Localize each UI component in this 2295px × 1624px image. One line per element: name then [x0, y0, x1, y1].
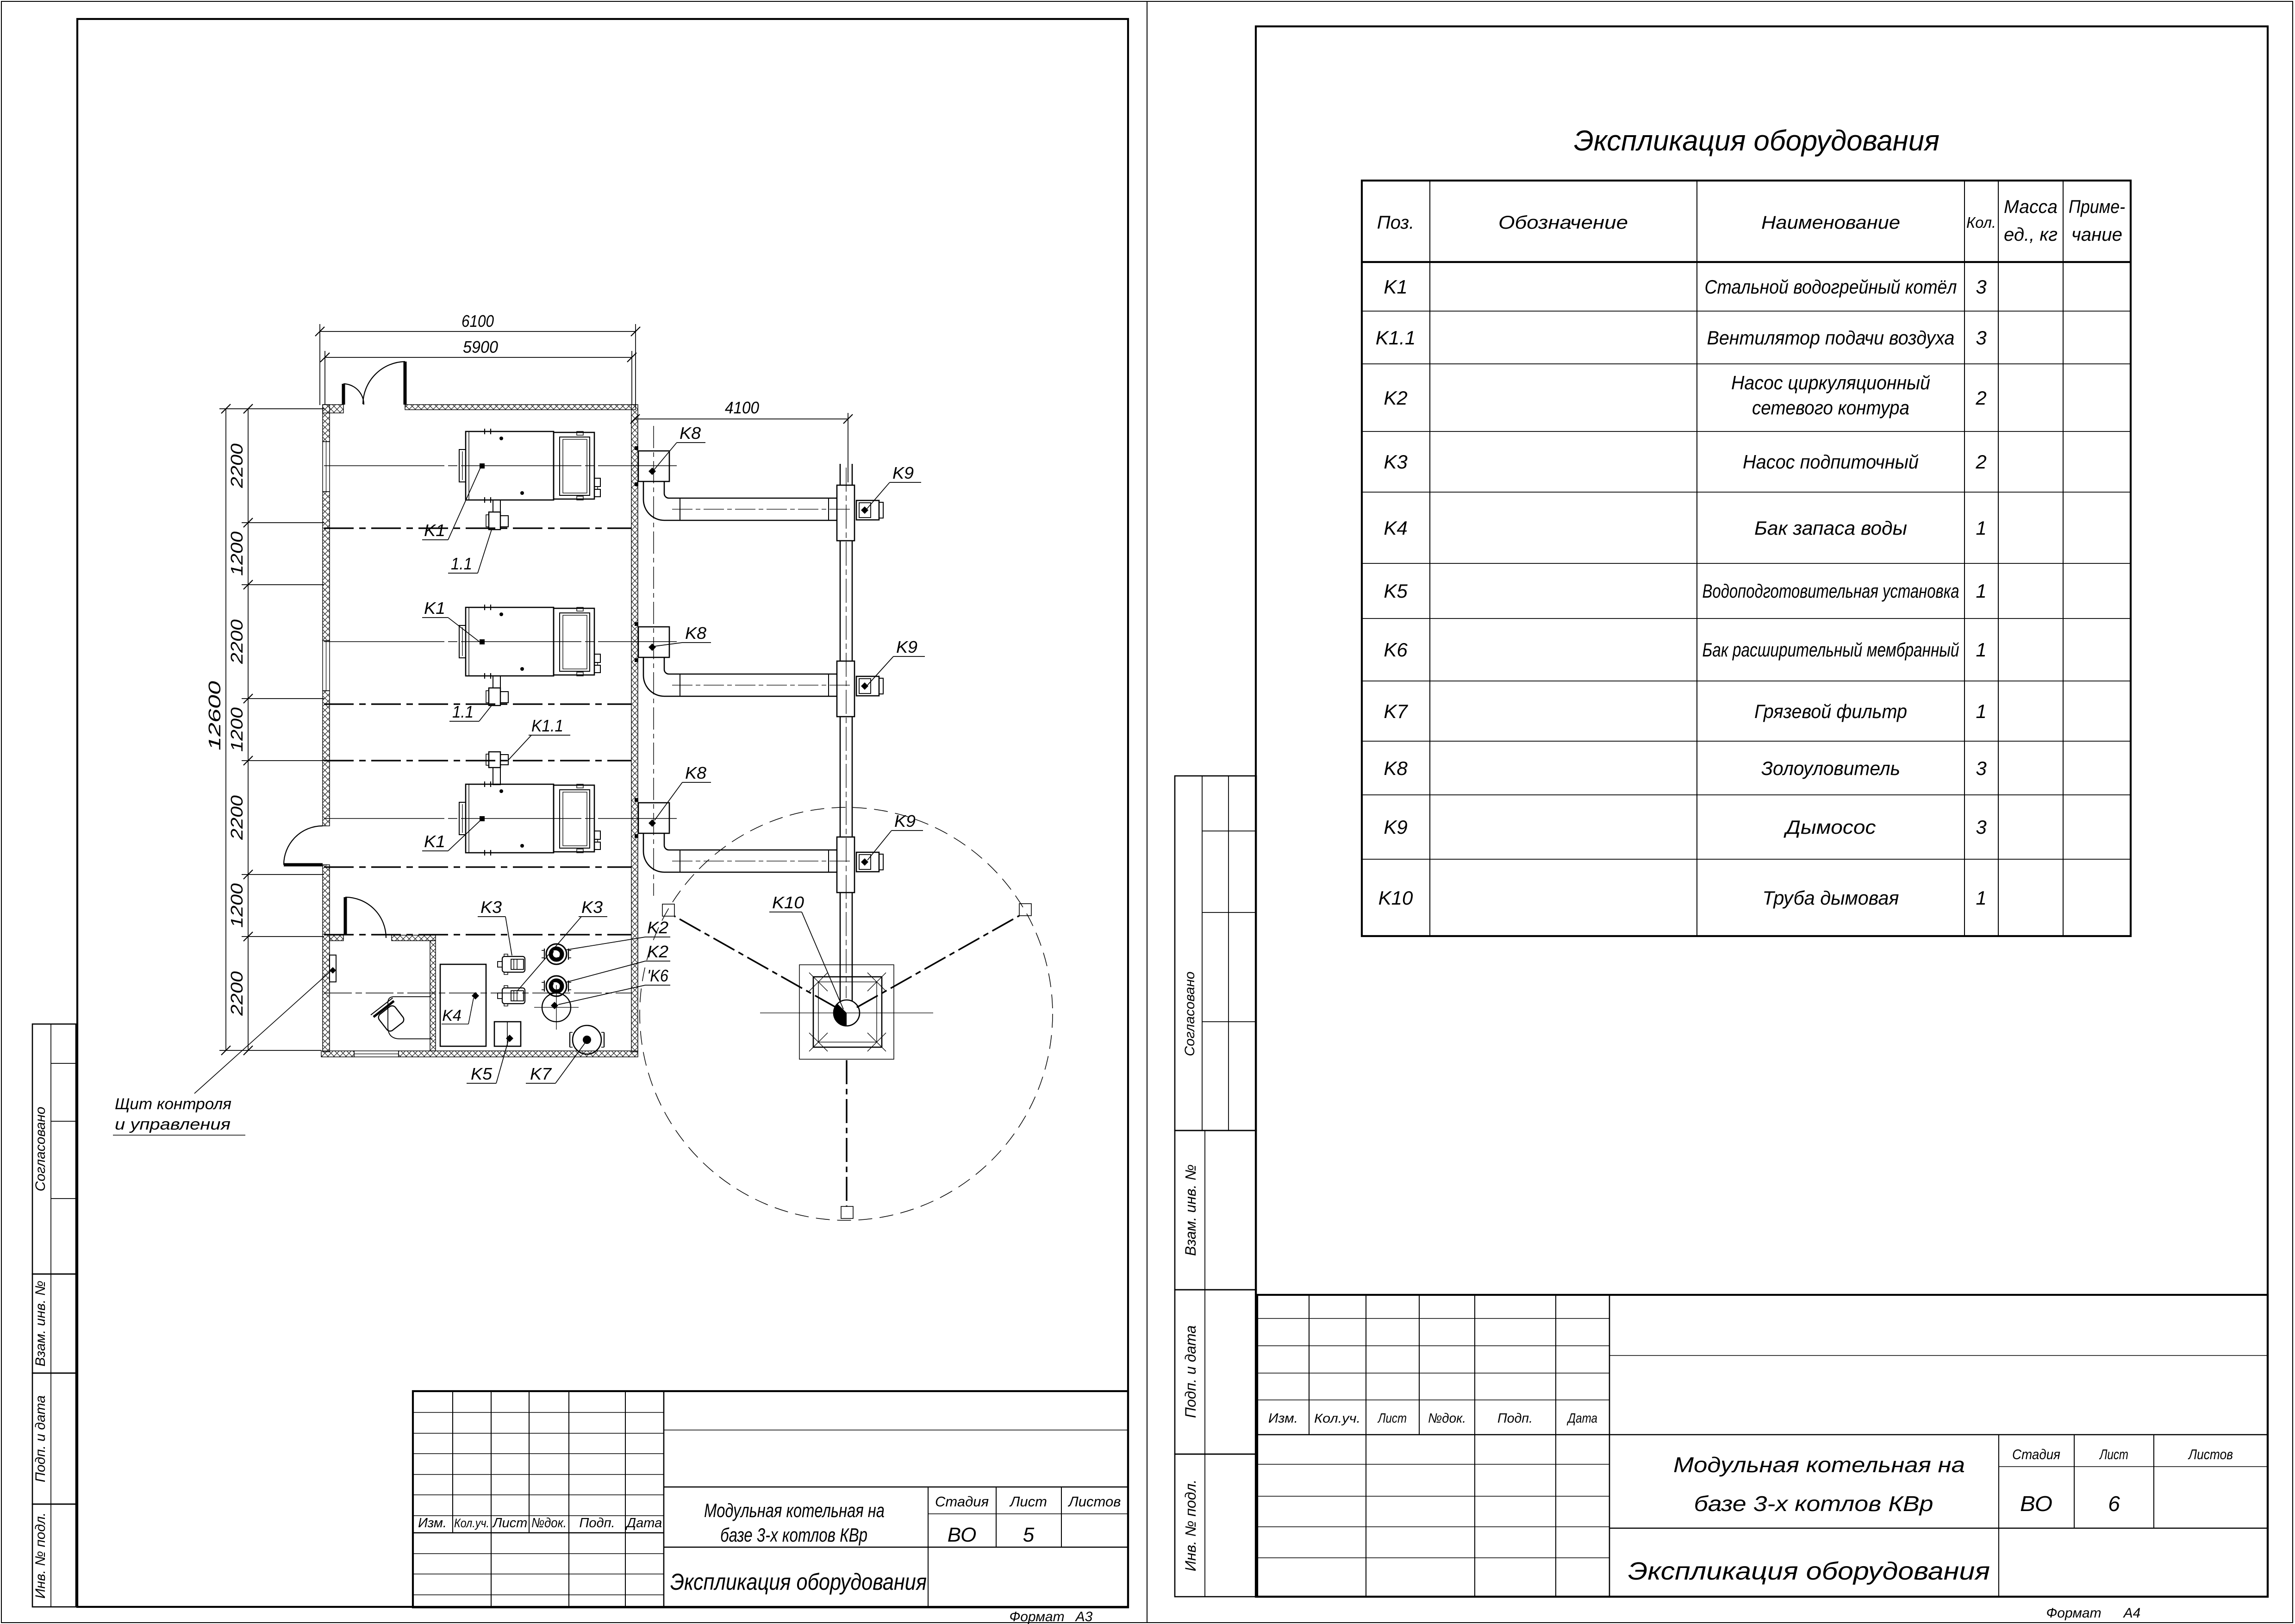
svg-text:2200: 2200: [227, 443, 246, 488]
svg-text:Лист: Лист: [1377, 1411, 1407, 1426]
svg-text:K10: K10: [772, 893, 804, 912]
svg-text:А3: А3: [1075, 1609, 1093, 1624]
svg-text:чание: чание: [2071, 225, 2122, 245]
svg-text:K1: K1: [424, 832, 445, 851]
svg-text:Подп.: Подп.: [1497, 1411, 1533, 1426]
svg-text:Лист: Лист: [492, 1516, 528, 1530]
svg-text:K4: K4: [442, 1007, 461, 1024]
svg-text:Подп. и дата: Подп. и дата: [1182, 1325, 1199, 1418]
svg-text:Инв. № подл.: Инв. № подл.: [1182, 1480, 1199, 1572]
svg-text:Грязевой фильтр: Грязевой фильтр: [1754, 700, 1907, 722]
svg-text:Изм.: Изм.: [418, 1516, 447, 1530]
svg-text:Насос циркуляционный: Насос циркуляционный: [1731, 372, 1930, 394]
svg-text:Формат: Формат: [1009, 1609, 1064, 1624]
svg-text:Изм.: Изм.: [1268, 1411, 1298, 1426]
svg-text:сетевого контура: сетевого контура: [1752, 397, 1909, 418]
svg-text:2200: 2200: [227, 619, 246, 664]
svg-text:Дата: Дата: [625, 1516, 662, 1530]
svg-text:Подп.: Подп.: [579, 1516, 615, 1530]
svg-text:2200: 2200: [227, 795, 246, 840]
svg-text:Листов: Листов: [2188, 1446, 2233, 1462]
svg-text:Модульная котельная на: Модульная котельная на: [1673, 1453, 1965, 1477]
svg-text:K3: K3: [480, 898, 502, 917]
svg-text:K4: K4: [1384, 517, 1407, 539]
svg-text:5: 5: [1023, 1524, 1035, 1546]
svg-text:ВО: ВО: [948, 1524, 977, 1546]
svg-text:Щит контроля: Щит контроля: [115, 1095, 231, 1113]
svg-text:1: 1: [1976, 517, 1986, 539]
svg-text:1.1: 1.1: [452, 702, 474, 721]
svg-text:Бак запаса воды: Бак запаса воды: [1754, 517, 1907, 539]
svg-text:Стадия: Стадия: [935, 1493, 989, 1510]
svg-text:1: 1: [1976, 580, 1986, 602]
svg-text:Приме-: Приме-: [2069, 197, 2125, 217]
svg-text:K8: K8: [685, 624, 706, 643]
svg-text:Золоуловитель: Золоуловитель: [1761, 757, 1900, 779]
svg-text:6: 6: [2108, 1492, 2120, 1516]
svg-text:3: 3: [1976, 757, 1986, 779]
svg-text:K1: K1: [1384, 276, 1407, 298]
svg-text:ед., кг: ед., кг: [2004, 225, 2058, 245]
svg-text:Кол.уч.: Кол.уч.: [454, 1516, 489, 1530]
svg-text:Формат: Формат: [2046, 1605, 2101, 1621]
svg-text:K1.1: K1.1: [1376, 327, 1416, 349]
svg-text:K1: K1: [424, 521, 445, 540]
svg-text:2200: 2200: [227, 971, 246, 1016]
svg-text:Стадия: Стадия: [2012, 1446, 2060, 1462]
svg-text:Насос подпиточный: Насос подпиточный: [1743, 451, 1919, 473]
svg-text:K8: K8: [680, 424, 701, 443]
svg-text:№док.: №док.: [531, 1516, 567, 1530]
svg-text:1: 1: [1976, 700, 1986, 722]
svg-text:Согласовано: Согласовано: [33, 1107, 48, 1192]
svg-text:K5: K5: [471, 1064, 493, 1083]
svg-text:Экспликация оборудования: Экспликация оборудования: [1628, 1557, 1990, 1585]
svg-text:Модульная котельная на: Модульная котельная на: [704, 1499, 885, 1521]
svg-text:А4: А4: [2123, 1605, 2141, 1621]
svg-text:K9: K9: [894, 812, 916, 831]
svg-text:базе 3-х котлов КВр: базе 3-х котлов КВр: [720, 1524, 867, 1546]
svg-text:Дата: Дата: [1566, 1411, 1597, 1426]
svg-text:Бак расширительный мембранный: Бак расширительный мембранный: [1703, 639, 1959, 661]
svg-text:Наименование: Наименование: [1761, 212, 1900, 233]
svg-text:K3: K3: [581, 898, 603, 917]
svg-text:Экспликация оборудования: Экспликация оборудования: [1574, 125, 1940, 157]
svg-text:Труба дымовая: Труба дымовая: [1763, 887, 1899, 909]
svg-text:'K6: 'K6: [647, 966, 669, 985]
svg-text:Листов: Листов: [1068, 1493, 1121, 1510]
svg-text:K10: K10: [1378, 887, 1413, 909]
svg-text:K2: K2: [1384, 387, 1407, 409]
svg-text:1200: 1200: [227, 531, 246, 576]
svg-text:6100: 6100: [461, 312, 494, 331]
svg-text:Дымосос: Дымосос: [1784, 816, 1876, 838]
svg-text:1: 1: [1976, 887, 1986, 909]
svg-text:Экспликация оборудования: Экспликация оборудования: [670, 1569, 927, 1595]
svg-text:Взам. инв. №: Взам. инв. №: [33, 1280, 48, 1367]
svg-text:K1.1: K1.1: [531, 716, 563, 735]
svg-text:K7: K7: [1384, 700, 1408, 722]
svg-text:ВО: ВО: [2020, 1492, 2052, 1516]
svg-text:Поз.: Поз.: [1377, 212, 1415, 233]
svg-text:Взам. инв. №: Взам. инв. №: [1182, 1164, 1199, 1256]
svg-text:Подп. и дата: Подп. и дата: [33, 1395, 48, 1482]
svg-text:Инв. № подл.: Инв. № подл.: [33, 1512, 48, 1599]
svg-text:4100: 4100: [725, 398, 759, 417]
svg-text:12600: 12600: [205, 681, 224, 750]
svg-text:Водоподготовительная установка: Водоподготовительная установка: [1703, 580, 1959, 602]
svg-text:K3: K3: [1384, 451, 1407, 473]
svg-text:№док.: №док.: [1428, 1411, 1466, 1426]
svg-text:K5: K5: [1384, 580, 1408, 602]
svg-text:Масса: Масса: [2004, 197, 2058, 217]
svg-text:K9: K9: [896, 637, 917, 656]
svg-text:и управления: и управления: [115, 1116, 231, 1133]
svg-text:1200: 1200: [227, 883, 246, 928]
svg-text:K2: K2: [647, 918, 668, 937]
svg-text:Кол.уч.: Кол.уч.: [1314, 1411, 1360, 1425]
svg-text:K1: K1: [424, 599, 445, 618]
svg-text:K9: K9: [1384, 816, 1407, 838]
svg-text:Кол.: Кол.: [1966, 214, 1996, 231]
svg-text:2: 2: [1975, 451, 1986, 473]
svg-text:1200: 1200: [227, 707, 246, 752]
svg-text:Обозначение: Обозначение: [1498, 212, 1628, 233]
svg-text:3: 3: [1976, 816, 1986, 838]
svg-text:1.1: 1.1: [451, 554, 472, 573]
svg-text:K6: K6: [1384, 639, 1408, 661]
svg-text:K8: K8: [685, 763, 706, 782]
svg-text:3: 3: [1976, 276, 1986, 298]
svg-text:базе 3-х котлов КВр: базе 3-х котлов КВр: [1694, 1492, 1933, 1516]
svg-text:1: 1: [1976, 639, 1986, 661]
svg-text:K8: K8: [1384, 757, 1408, 779]
svg-text:K9: K9: [892, 463, 914, 482]
svg-text:Вентилятор подачи воздуха: Вентилятор подачи воздуха: [1707, 327, 1955, 349]
svg-text:Согласовано: Согласовано: [1182, 972, 1197, 1056]
svg-text:Лист: Лист: [1009, 1493, 1047, 1510]
svg-text:3: 3: [1976, 327, 1986, 349]
svg-text:2: 2: [1975, 387, 1986, 409]
svg-text:K7: K7: [530, 1064, 552, 1083]
svg-text:Стальной водогрейный котёл: Стальной водогрейный котёл: [1705, 276, 1957, 298]
svg-text:5900: 5900: [463, 337, 498, 356]
svg-text:K2: K2: [647, 942, 668, 961]
svg-text:Лист: Лист: [2099, 1446, 2128, 1462]
